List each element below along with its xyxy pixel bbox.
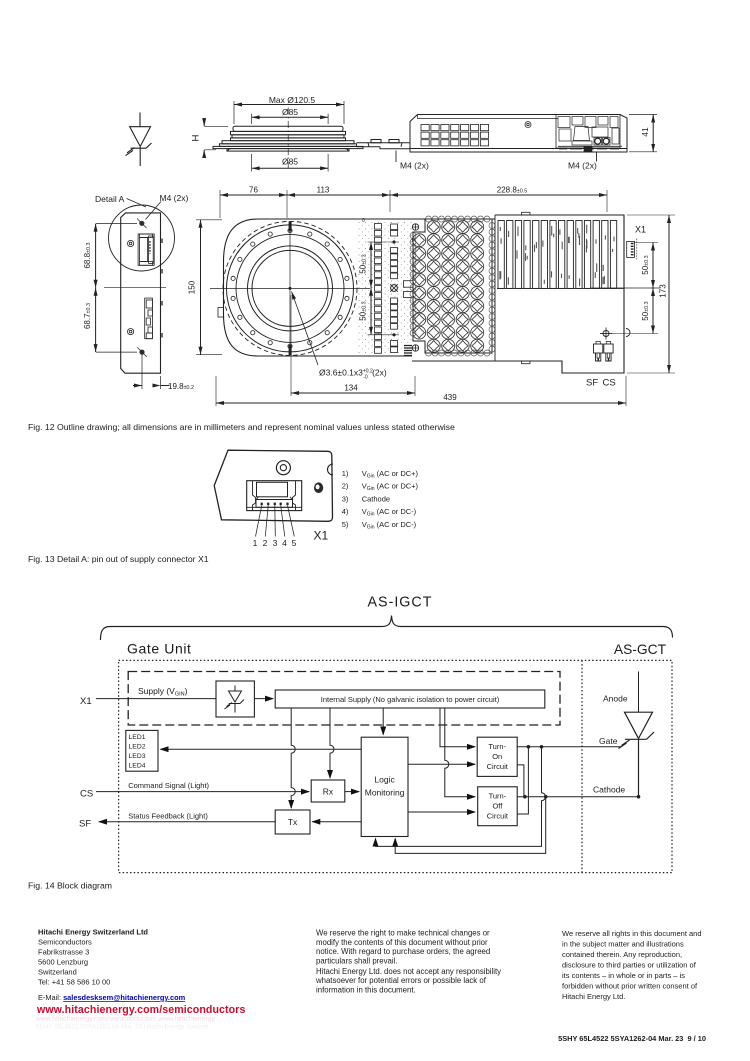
svg-text:76: 76 bbox=[249, 186, 258, 195]
svg-text:113: 113 bbox=[317, 186, 330, 195]
svg-text:Fig. 12 Outline drawing; all d: Fig. 12 Outline drawing; all dimensions … bbox=[28, 422, 455, 432]
svg-text:notice. With regard to purchas: notice. With regard to purchase orders, … bbox=[316, 947, 490, 956]
svg-text:41: 41 bbox=[640, 127, 650, 137]
svg-text:Logic: Logic bbox=[374, 775, 395, 785]
svg-text:1: 1 bbox=[253, 538, 258, 548]
svg-text:Circuit: Circuit bbox=[487, 812, 509, 821]
svg-text:50±0.3: 50±0.3 bbox=[641, 255, 650, 274]
svg-text:modify the contents of this do: modify the contents of this document wit… bbox=[316, 938, 488, 947]
svg-text:Gate Unit: Gate Unit bbox=[127, 641, 192, 657]
svg-text:0: 0 bbox=[362, 218, 365, 224]
svg-text:5): 5) bbox=[342, 520, 349, 529]
svg-text:439: 439 bbox=[443, 393, 457, 402]
svg-text:disclosure to third parties or: disclosure to third parties or utilizati… bbox=[562, 961, 697, 970]
svg-text:5SHY 65L4522 5SYA1262-04 Mar.: 5SHY 65L4522 5SYA1262-04 Mar. 23 Hitachi… bbox=[36, 1024, 208, 1031]
svg-text:1°: 1° bbox=[411, 238, 416, 244]
svg-text:its contents – in whole or in: its contents – in whole or in parts – is bbox=[562, 971, 685, 980]
svg-text:Gate: Gate bbox=[599, 736, 618, 746]
svg-text:whatsoever for potential error: whatsoever for potential errors or possi… bbox=[315, 976, 487, 985]
svg-text:Fabrikstrasse 3: Fabrikstrasse 3 bbox=[38, 948, 89, 957]
svg-text:E-Mail: salesdesksem@hitachien: E-Mail: salesdesksem@hitachienergy.com bbox=[38, 993, 186, 1002]
svg-text:in the subject matter and illu: in the subject matter and illustrations bbox=[562, 940, 684, 949]
svg-text:CS: CS bbox=[603, 378, 616, 389]
svg-text:2): 2) bbox=[342, 482, 349, 491]
svg-text:H: H bbox=[191, 134, 202, 141]
svg-text:SF: SF bbox=[79, 819, 91, 830]
svg-text:www.hitachienergy.com/semicond: www.hitachienergy.com/semiconductors www… bbox=[35, 1016, 216, 1023]
svg-text:Fig. 13 Detail A: pin out of s: Fig. 13 Detail A: pin out of supply conn… bbox=[28, 554, 209, 564]
svg-text:Semiconductors: Semiconductors bbox=[38, 938, 92, 947]
svg-text:forbidden without prior writte: forbidden without prior written consent … bbox=[562, 982, 698, 991]
svg-text:LED3: LED3 bbox=[129, 753, 146, 760]
svg-text:M4 (2x): M4 (2x) bbox=[568, 161, 597, 171]
svg-text:Ø85: Ø85 bbox=[282, 107, 298, 117]
svg-text:50±0.3: 50±0.3 bbox=[641, 301, 650, 320]
svg-text:Hitachi Energy Ltd. does not a: Hitachi Energy Ltd. does not accept any … bbox=[316, 967, 501, 976]
svg-text:4): 4) bbox=[342, 507, 349, 516]
svg-text:Monitoring: Monitoring bbox=[365, 788, 405, 798]
svg-text:Detail A: Detail A bbox=[95, 194, 125, 204]
svg-text:Supply (VGIN): Supply (VGIN) bbox=[138, 686, 188, 698]
svg-text:AS-GCT: AS-GCT bbox=[614, 642, 667, 657]
svg-text:Tel: +41 58 586 10 00: Tel: +41 58 586 10 00 bbox=[38, 978, 110, 987]
svg-text:Turn-: Turn- bbox=[488, 742, 506, 751]
svg-text:LED4: LED4 bbox=[129, 763, 146, 770]
svg-text:particulars shall prevail.: particulars shall prevail. bbox=[316, 956, 397, 965]
svg-text:Switzerland: Switzerland bbox=[38, 968, 77, 977]
svg-text:SF: SF bbox=[586, 378, 598, 389]
svg-text:We reserve all rights in this: We reserve all rights in this document a… bbox=[562, 929, 702, 938]
svg-text:VGin (AC or DC+): VGin (AC or DC+) bbox=[362, 482, 419, 493]
svg-text:Hitachi Energy Ltd.: Hitachi Energy Ltd. bbox=[562, 992, 625, 1001]
svg-text:68.7±0.3: 68.7±0.3 bbox=[83, 303, 92, 329]
svg-text:X1: X1 bbox=[80, 696, 92, 707]
svg-text:LED2: LED2 bbox=[129, 744, 146, 751]
svg-text:www.hitachienergy.com/semicond: www.hitachienergy.com/semiconductors bbox=[36, 1004, 245, 1016]
svg-text:VGin (AC or DC-): VGin (AC or DC-) bbox=[362, 507, 417, 518]
svg-text:68.8±0.3: 68.8±0.3 bbox=[83, 242, 92, 268]
svg-text:X1: X1 bbox=[635, 225, 646, 235]
svg-text:CS: CS bbox=[80, 789, 93, 800]
svg-text:Cathode: Cathode bbox=[593, 785, 625, 795]
svg-text:We reserve the right to make t: We reserve the right to make technical c… bbox=[316, 929, 490, 938]
svg-text:AS-IGCT: AS-IGCT bbox=[368, 595, 433, 611]
svg-text:X1: X1 bbox=[314, 529, 329, 543]
svg-text:5600 Lenzburg: 5600 Lenzburg bbox=[38, 958, 88, 967]
svg-text:VGin (AC or DC-): VGin (AC or DC-) bbox=[362, 520, 417, 531]
svg-text:2: 2 bbox=[263, 538, 268, 548]
svg-text:contained therein. Any reprodu: contained therein. Any reproduction, bbox=[562, 950, 682, 959]
svg-text:3): 3) bbox=[342, 494, 349, 503]
svg-text:Status Feedback (Light): Status Feedback (Light) bbox=[128, 812, 208, 821]
svg-text:5SHY 65L4522 5SYA1262-04 Mar.: 5SHY 65L4522 5SYA1262-04 Mar. 23 9 / 10 bbox=[558, 1034, 706, 1043]
svg-text:Anode: Anode bbox=[603, 694, 628, 704]
svg-text:Fig. 14 Block diagram: Fig. 14 Block diagram bbox=[28, 881, 112, 891]
svg-text:Max Ø120.5: Max Ø120.5 bbox=[269, 95, 316, 105]
svg-text:M4 (2x): M4 (2x) bbox=[160, 193, 189, 203]
svg-text:VGin (AC or DC+): VGin (AC or DC+) bbox=[362, 469, 419, 480]
svg-text:19.8±0.2: 19.8±0.2 bbox=[168, 382, 194, 391]
svg-text:Internal Supply (No galvanic i: Internal Supply (No galvanic isolation t… bbox=[321, 695, 500, 704]
svg-text:3: 3 bbox=[273, 538, 278, 548]
svg-text:Tx: Tx bbox=[288, 817, 298, 827]
svg-text:5: 5 bbox=[292, 538, 297, 548]
svg-text:Command Signal (Light): Command Signal (Light) bbox=[128, 781, 209, 790]
svg-text:Rx: Rx bbox=[323, 787, 334, 797]
svg-text:173: 173 bbox=[659, 284, 668, 298]
svg-text:Turn-: Turn- bbox=[489, 792, 507, 801]
svg-text:information in this document.: information in this document. bbox=[316, 985, 416, 994]
svg-text:Ø85: Ø85 bbox=[282, 157, 298, 167]
svg-text:M4 (2x): M4 (2x) bbox=[400, 161, 429, 171]
svg-text:Hitachi Energy Switzerland Ltd: Hitachi Energy Switzerland Ltd bbox=[38, 928, 148, 937]
svg-text:1): 1) bbox=[342, 469, 349, 478]
svg-text:228.8±0.5: 228.8±0.5 bbox=[497, 186, 527, 195]
svg-text:Off: Off bbox=[492, 802, 503, 811]
svg-text:Circuit: Circuit bbox=[487, 762, 509, 771]
svg-text:LED1: LED1 bbox=[129, 734, 146, 741]
svg-text:134: 134 bbox=[344, 384, 358, 393]
svg-text:Ø3.6±0.1x3+0.2-0 (2x): Ø3.6±0.1x3+0.2-0 (2x) bbox=[319, 368, 387, 381]
svg-text:4: 4 bbox=[282, 538, 287, 548]
svg-text:Cathode: Cathode bbox=[362, 494, 390, 503]
svg-text:On: On bbox=[492, 752, 502, 761]
svg-text:150: 150 bbox=[188, 280, 197, 294]
